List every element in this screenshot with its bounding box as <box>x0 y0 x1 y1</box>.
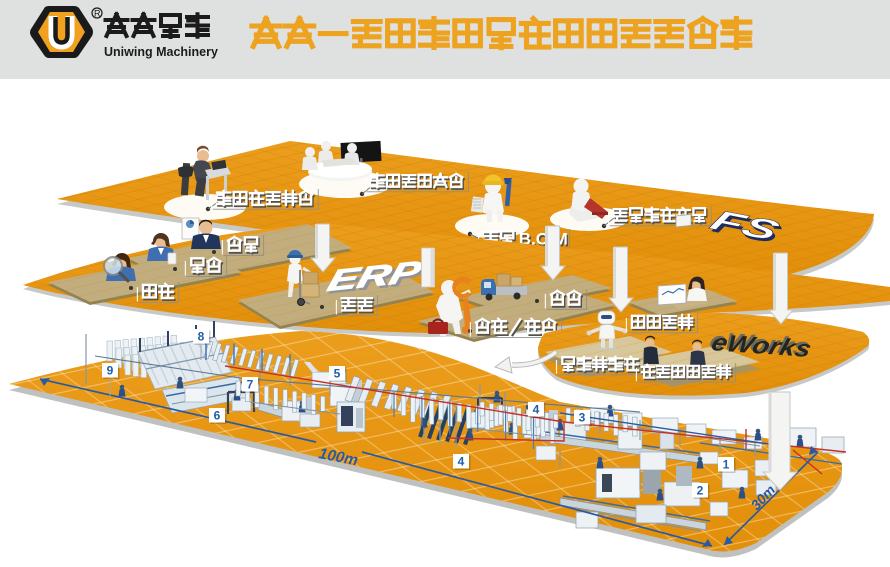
svg-text:4: 4 <box>533 403 540 417</box>
svg-text:8: 8 <box>198 330 205 344</box>
svg-text:6: 6 <box>214 409 221 423</box>
svg-text:2: 2 <box>697 484 704 498</box>
svg-text:Uniwing Machinery: Uniwing Machinery <box>104 45 218 59</box>
svg-text:R: R <box>94 9 101 19</box>
svg-text:5: 5 <box>334 367 341 381</box>
svg-text:7: 7 <box>247 378 254 392</box>
svg-text:1: 1 <box>723 458 730 472</box>
svg-text:4: 4 <box>458 455 465 469</box>
svg-text:9: 9 <box>107 364 114 378</box>
svg-text:3: 3 <box>579 411 586 425</box>
